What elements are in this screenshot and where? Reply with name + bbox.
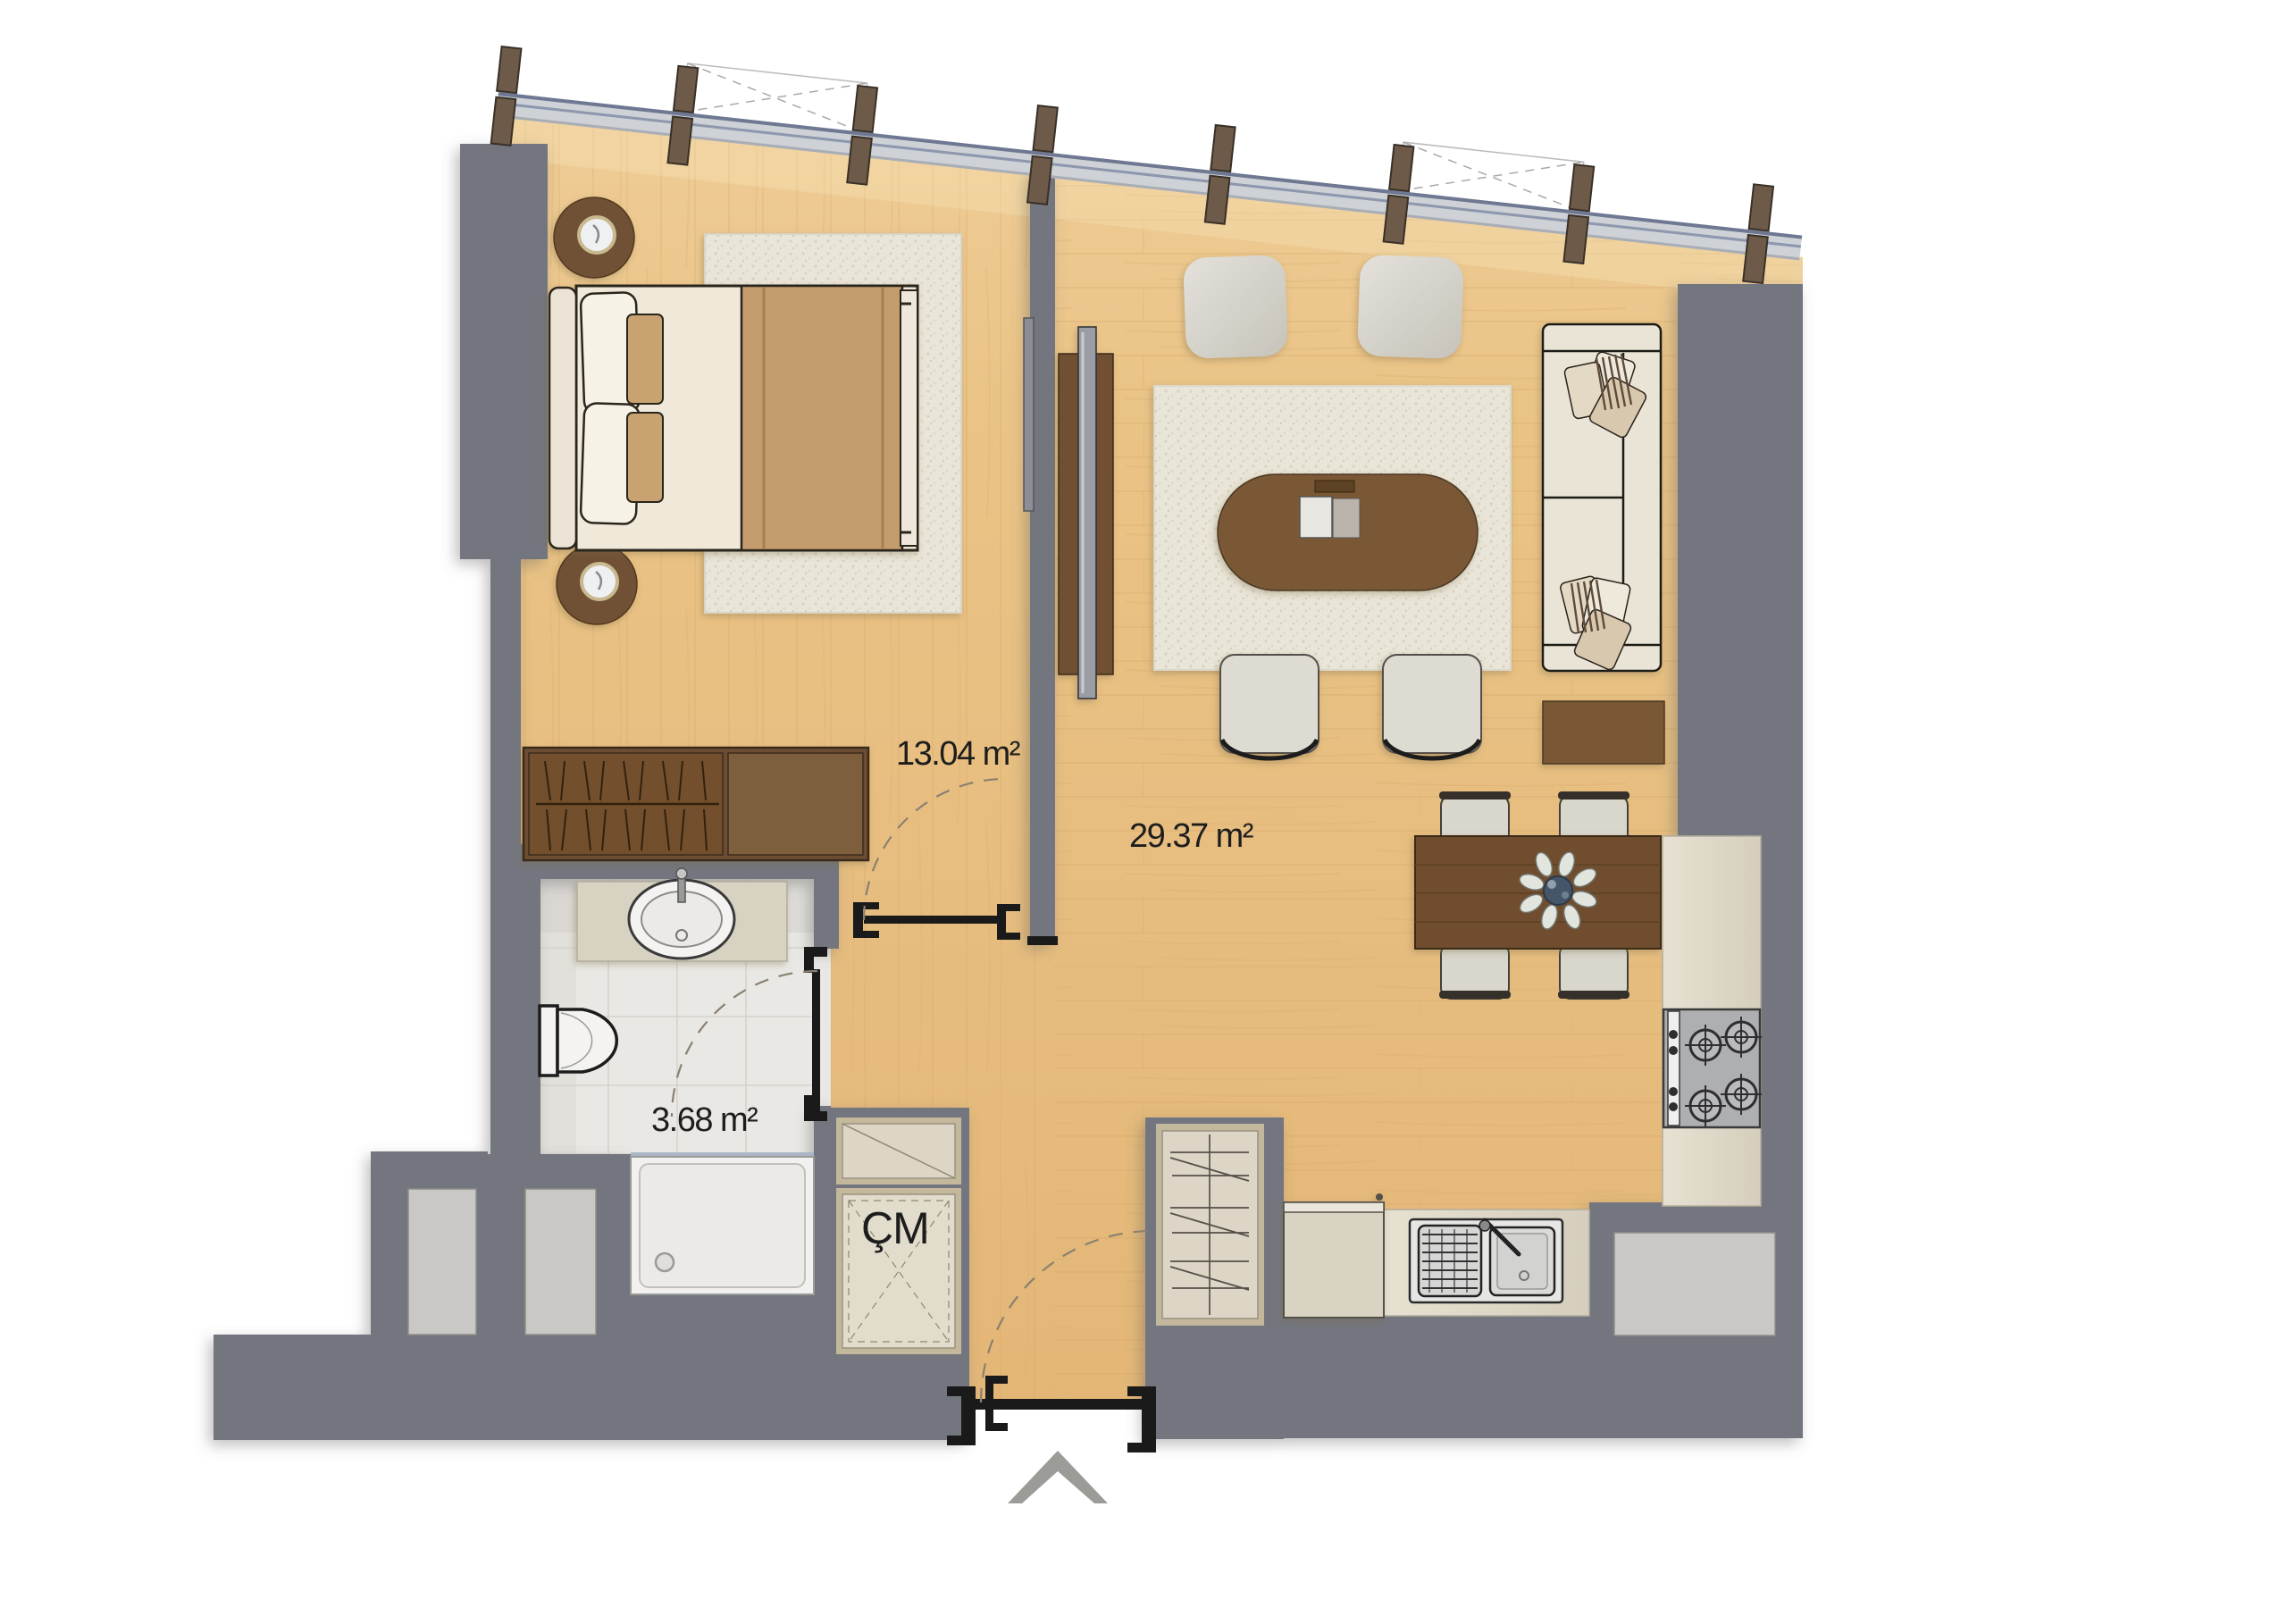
svg-text:ÇM: ÇM	[861, 1203, 929, 1253]
svg-text:3.68 m²: 3.68 m²	[651, 1101, 758, 1139]
svg-text:29.37 m²: 29.37 m²	[1129, 817, 1253, 855]
svg-text:13.04 m²: 13.04 m²	[896, 735, 1020, 773]
